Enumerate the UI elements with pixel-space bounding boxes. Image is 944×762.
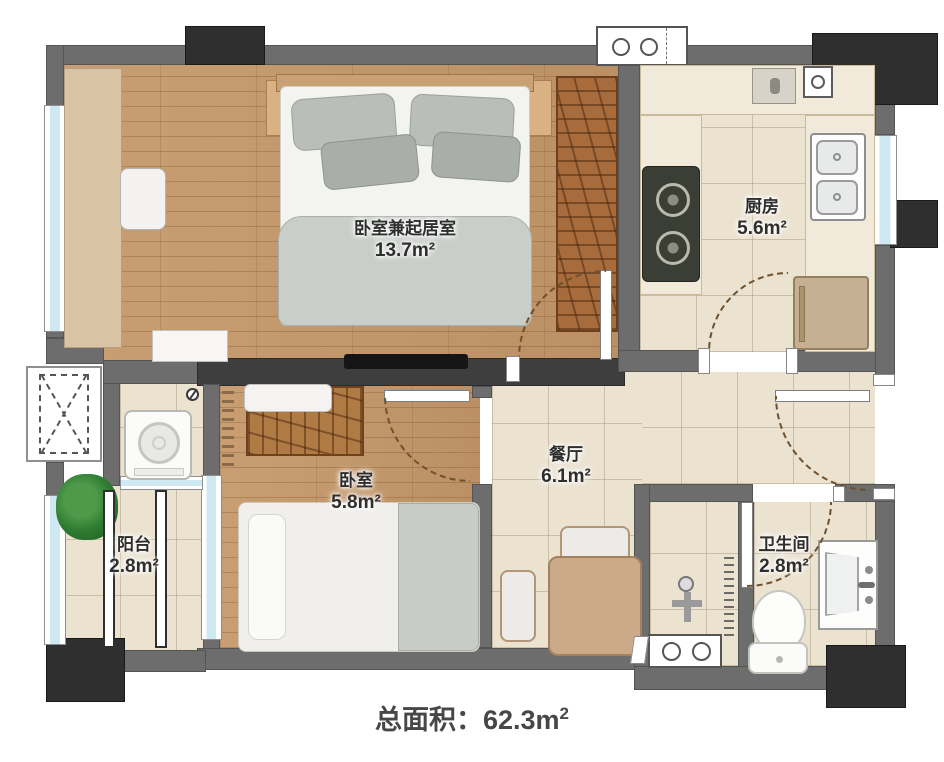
ac-dresser [244, 384, 332, 412]
window-kitchen-east [873, 135, 897, 245]
window-living-west [44, 105, 66, 332]
label-balcony: 阳台 2.8m² [92, 534, 176, 579]
room-name: 厨房 [712, 196, 812, 217]
wall-top [48, 45, 878, 65]
dining-chair [500, 570, 536, 642]
floor-drain-icon [186, 388, 199, 401]
room-name: 卫生间 [748, 534, 820, 555]
label-bathroom: 卫生间 2.8m² [748, 534, 820, 579]
meter-dial-icon [811, 75, 825, 89]
drain-line [188, 389, 197, 401]
mop-faucet-cross [672, 600, 702, 607]
fridge [793, 276, 869, 350]
room-area: 2.8m² [92, 555, 176, 579]
bed-pillow [248, 514, 286, 640]
gas-meter [803, 66, 833, 98]
door-jamb [833, 486, 845, 502]
pillow [431, 131, 522, 183]
kitchen-sink [810, 133, 866, 221]
desk-chair [120, 168, 166, 230]
wall-kitchen-south-right [788, 350, 878, 372]
prep-sink [752, 68, 796, 104]
living-door-swing [518, 270, 606, 358]
pier-top-left [185, 26, 265, 65]
floor-plan: 卧室兼起居室 13.7m² 厨房 5.6m² 卧室 5.8m² 餐厅 6.1m²… [0, 0, 944, 762]
pillow [320, 133, 420, 191]
washing-machine [124, 410, 192, 480]
door-jamb [506, 356, 520, 382]
bed-blanket [398, 503, 479, 651]
tap-knob-icon [865, 566, 873, 574]
door-jamb [698, 348, 710, 374]
cooktop [642, 166, 700, 282]
dining-table [548, 556, 642, 656]
vent-divider [666, 28, 667, 64]
wall-bath-north-left [634, 484, 753, 502]
label-living-bedroom: 卧室兼起居室 13.7m² [300, 218, 510, 263]
total-area-value: 62.3m [483, 705, 560, 735]
kitchen-door-swing [708, 272, 788, 352]
label-dining: 餐厅 6.1m² [516, 444, 616, 489]
burner-icon [656, 231, 690, 265]
washer-panel [134, 468, 184, 476]
door-jamb [786, 348, 798, 374]
label-kitchen: 厨房 5.6m² [712, 196, 812, 241]
drain-icon [833, 193, 841, 201]
flush-button-icon [776, 656, 783, 663]
toilet-tank [748, 642, 808, 674]
pier-right-mid [890, 200, 938, 248]
door-jamb [873, 488, 895, 500]
total-area-caption: 总面积：62.3m2 [0, 698, 944, 737]
room-area: 5.6m² [712, 217, 812, 241]
wall-nook-top [103, 360, 203, 384]
flue-pipe-icon [662, 642, 681, 661]
wall-kitchen-west [618, 45, 640, 355]
door-jamb [873, 374, 895, 386]
drain-icon [833, 153, 841, 161]
vent-pipe-icon [640, 38, 658, 56]
entry-door-swing [775, 396, 870, 491]
tap-knob-icon [865, 596, 873, 604]
tv [344, 354, 468, 369]
room-name: 卧室 [306, 470, 406, 491]
flue-pipe-icon [692, 642, 711, 661]
room-name: 卧室兼起居室 [300, 218, 510, 239]
room-area: 13.7m² [300, 239, 510, 263]
mop-faucet-icon [678, 576, 694, 592]
wall-kitchen-south-left [618, 350, 710, 372]
room-area: 5.8m² [306, 491, 406, 515]
vent-shaft [596, 26, 688, 66]
faucet-icon [770, 78, 780, 94]
desk-bench [64, 68, 122, 348]
window-bedroom-balcony [201, 475, 222, 640]
tap-handle-icon [858, 582, 875, 588]
burner-icon [656, 183, 690, 217]
curtain-strip [222, 388, 234, 466]
tv-cabinet [152, 330, 228, 362]
room-name: 阳台 [92, 534, 176, 555]
vent-pipe-icon [612, 38, 630, 56]
room-area: 6.1m² [516, 465, 616, 489]
fridge-handle [799, 286, 805, 342]
flue-box [648, 634, 722, 668]
pipe-coil [724, 556, 734, 636]
wall-right-b [875, 245, 895, 382]
total-area-label: 总面积： [375, 705, 483, 735]
total-area-sup: 2 [560, 704, 569, 723]
equipment-platform [26, 366, 102, 462]
mop-faucet-stem [684, 592, 691, 622]
wall-bedroom-east-stub [472, 386, 492, 398]
label-bedroom: 卧室 5.8m² [306, 470, 406, 515]
room-name: 餐厅 [516, 444, 616, 465]
room-area: 2.8m² [748, 555, 820, 579]
washer-drum-icon [138, 422, 180, 464]
washer-drum-inner [152, 436, 166, 450]
